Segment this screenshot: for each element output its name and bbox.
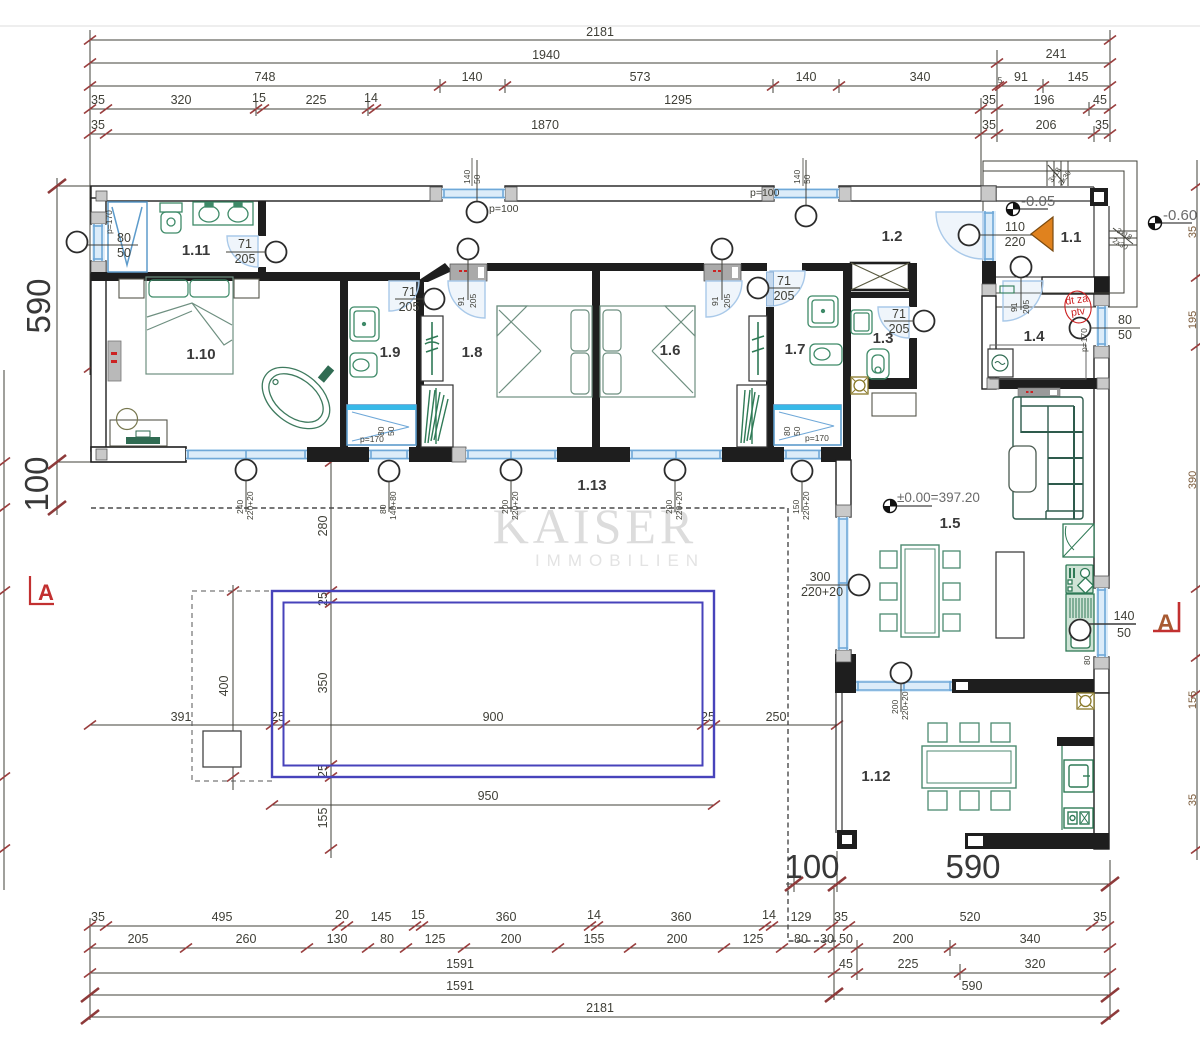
svg-text:360: 360 [671, 910, 692, 924]
svg-text:91: 91 [456, 296, 466, 306]
svg-text:140: 140 [462, 70, 483, 84]
svg-text:15: 15 [411, 908, 425, 922]
svg-text:590: 590 [20, 278, 57, 333]
svg-text:280: 280 [316, 516, 330, 537]
svg-text:350: 350 [316, 673, 330, 694]
svg-text:1.5: 1.5 [940, 515, 961, 532]
svg-text:150: 150 [791, 500, 801, 514]
svg-text:145: 145 [1068, 70, 1089, 84]
svg-text:91: 91 [1009, 302, 1019, 312]
svg-text:140+80: 140+80 [388, 491, 398, 520]
svg-text:80: 80 [376, 426, 386, 436]
svg-text:71: 71 [777, 274, 791, 288]
svg-text:110: 110 [1005, 220, 1025, 234]
svg-text:196: 196 [1034, 93, 1055, 107]
svg-text:50: 50 [117, 246, 131, 260]
svg-text:p=100: p=100 [750, 187, 780, 199]
svg-text:±0.00=397.20: ±0.00=397.20 [897, 490, 980, 505]
svg-text:155: 155 [584, 932, 605, 946]
svg-text:206: 206 [1036, 118, 1057, 132]
svg-text:1.1: 1.1 [1061, 229, 1082, 246]
svg-text:200: 200 [501, 932, 522, 946]
svg-text:260: 260 [236, 932, 257, 946]
svg-text:2181: 2181 [586, 25, 614, 39]
svg-text:50: 50 [472, 174, 482, 184]
svg-text:520: 520 [960, 910, 981, 924]
svg-text:240: 240 [235, 500, 245, 514]
svg-text:1.12: 1.12 [861, 768, 890, 785]
svg-text:200: 200 [664, 500, 674, 514]
svg-text:80: 80 [117, 231, 131, 245]
svg-text:45: 45 [839, 957, 853, 971]
svg-text:140: 140 [792, 170, 802, 184]
svg-text:155: 155 [1187, 691, 1199, 709]
svg-text:340: 340 [1020, 932, 1041, 946]
svg-text:1.8: 1.8 [462, 344, 483, 361]
svg-text:205: 205 [774, 289, 795, 303]
svg-text:390: 390 [1187, 471, 1199, 489]
svg-text:80: 80 [380, 932, 394, 946]
svg-text:495: 495 [212, 910, 233, 924]
svg-text:35: 35 [1095, 118, 1109, 132]
svg-text:p=170: p=170 [104, 210, 114, 234]
svg-text:2181: 2181 [586, 1001, 614, 1015]
svg-text:900: 900 [483, 710, 504, 724]
svg-text:205: 205 [889, 322, 910, 336]
svg-text:200: 200 [890, 700, 900, 714]
svg-text:220+20: 220+20 [674, 491, 684, 520]
svg-text:400: 400 [217, 676, 231, 697]
svg-text:391: 391 [171, 710, 192, 724]
svg-text:200: 200 [893, 932, 914, 946]
svg-text:1.4: 1.4 [1024, 328, 1046, 345]
svg-text:225: 225 [898, 957, 919, 971]
svg-text:50: 50 [802, 174, 812, 184]
svg-text:50: 50 [1118, 328, 1132, 342]
svg-text:20: 20 [335, 908, 349, 922]
svg-text:45: 45 [1093, 93, 1107, 107]
svg-text:129: 129 [791, 910, 812, 924]
svg-text:35: 35 [91, 910, 105, 924]
svg-text:71: 71 [402, 285, 416, 299]
svg-text:1.9: 1.9 [380, 344, 401, 361]
svg-text:1.2: 1.2 [882, 228, 903, 245]
svg-text:14: 14 [364, 91, 378, 105]
svg-text:5: 5 [998, 76, 1003, 85]
svg-text:130: 130 [327, 932, 348, 946]
svg-text:80: 80 [1082, 655, 1092, 665]
svg-text:35: 35 [1093, 910, 1107, 924]
svg-text:205: 205 [468, 294, 478, 308]
svg-text:71: 71 [238, 237, 252, 251]
svg-text:1.11: 1.11 [182, 242, 210, 259]
svg-text:35: 35 [834, 910, 848, 924]
svg-text:1.6: 1.6 [660, 342, 681, 359]
svg-text:-0.60: -0.60 [1163, 207, 1197, 224]
svg-text:320: 320 [171, 93, 192, 107]
svg-text:1870: 1870 [531, 118, 559, 132]
svg-text:145: 145 [371, 910, 392, 924]
svg-text:25: 25 [316, 592, 330, 606]
svg-text:140: 140 [1114, 609, 1135, 623]
svg-text:80: 80 [794, 932, 808, 946]
svg-text:200: 200 [500, 500, 510, 514]
svg-text:35: 35 [91, 118, 105, 132]
svg-text:p=100: p=100 [489, 203, 519, 215]
svg-text:35: 35 [1187, 794, 1199, 806]
svg-text:14: 14 [587, 908, 601, 922]
svg-text:1940: 1940 [532, 48, 560, 62]
svg-text:205: 205 [399, 300, 420, 314]
svg-text:205: 205 [235, 252, 256, 266]
svg-text:14: 14 [762, 908, 776, 922]
svg-text:A: A [1157, 610, 1174, 637]
svg-text:100: 100 [784, 848, 839, 885]
svg-text:748: 748 [255, 70, 276, 84]
svg-text:220+20: 220+20 [510, 491, 520, 520]
svg-text:80: 80 [1118, 313, 1132, 327]
svg-text:1.10: 1.10 [186, 346, 215, 363]
svg-text:-0.05: -0.05 [1021, 193, 1055, 210]
svg-text:15: 15 [252, 91, 266, 105]
svg-text:100: 100 [18, 456, 55, 511]
svg-text:35: 35 [91, 93, 105, 107]
svg-text:220+20: 220+20 [801, 585, 843, 599]
svg-text:50: 50 [386, 426, 396, 436]
svg-text:91: 91 [710, 296, 720, 306]
svg-text:p=170: p=170 [805, 433, 829, 443]
svg-text:241: 241 [1046, 47, 1067, 61]
svg-text:50: 50 [1117, 626, 1131, 640]
svg-text:1295: 1295 [664, 93, 692, 107]
svg-text:590: 590 [945, 848, 1000, 885]
svg-text:340: 340 [910, 70, 931, 84]
svg-text:ptv: ptv [1070, 305, 1086, 319]
svg-text:155: 155 [316, 808, 330, 829]
svg-text:91: 91 [1014, 70, 1028, 84]
svg-text:50: 50 [792, 426, 802, 436]
svg-text:125: 125 [743, 932, 764, 946]
svg-text:250: 250 [766, 710, 787, 724]
svg-text:300: 300 [810, 570, 831, 584]
svg-text:1.7: 1.7 [785, 341, 806, 358]
svg-text:35: 35 [982, 118, 996, 132]
svg-text:205: 205 [1021, 300, 1031, 314]
svg-text:205: 205 [128, 932, 149, 946]
svg-text:35: 35 [1187, 226, 1199, 238]
svg-text:195: 195 [1187, 311, 1199, 329]
svg-text:A: A [38, 580, 54, 605]
svg-text:320: 320 [1025, 957, 1046, 971]
svg-text:35: 35 [982, 93, 996, 107]
svg-text:p=170: p=170 [1079, 328, 1089, 352]
svg-text:590: 590 [962, 979, 983, 993]
svg-text:80: 80 [378, 504, 388, 514]
svg-text:IMMOBILIEN: IMMOBILIEN [535, 551, 705, 570]
svg-text:200: 200 [667, 932, 688, 946]
svg-text:950: 950 [478, 789, 499, 803]
svg-text:220+20: 220+20 [801, 491, 811, 520]
svg-text:80: 80 [782, 426, 792, 436]
svg-text:220+20: 220+20 [900, 691, 910, 720]
svg-text:71: 71 [892, 307, 906, 321]
svg-text:225: 225 [306, 93, 327, 107]
svg-text:220+20: 220+20 [245, 491, 255, 520]
svg-text:125: 125 [425, 932, 446, 946]
svg-text:573: 573 [630, 70, 651, 84]
svg-text:50: 50 [839, 932, 853, 946]
svg-text:205: 205 [722, 294, 732, 308]
svg-text:360: 360 [496, 910, 517, 924]
svg-text:1591: 1591 [446, 957, 474, 971]
svg-text:140: 140 [462, 170, 472, 184]
svg-text:140: 140 [796, 70, 817, 84]
svg-text:220: 220 [1005, 235, 1026, 249]
svg-text:1591: 1591 [446, 979, 474, 993]
svg-text:1.13: 1.13 [577, 477, 606, 494]
svg-text:30: 30 [820, 932, 834, 946]
